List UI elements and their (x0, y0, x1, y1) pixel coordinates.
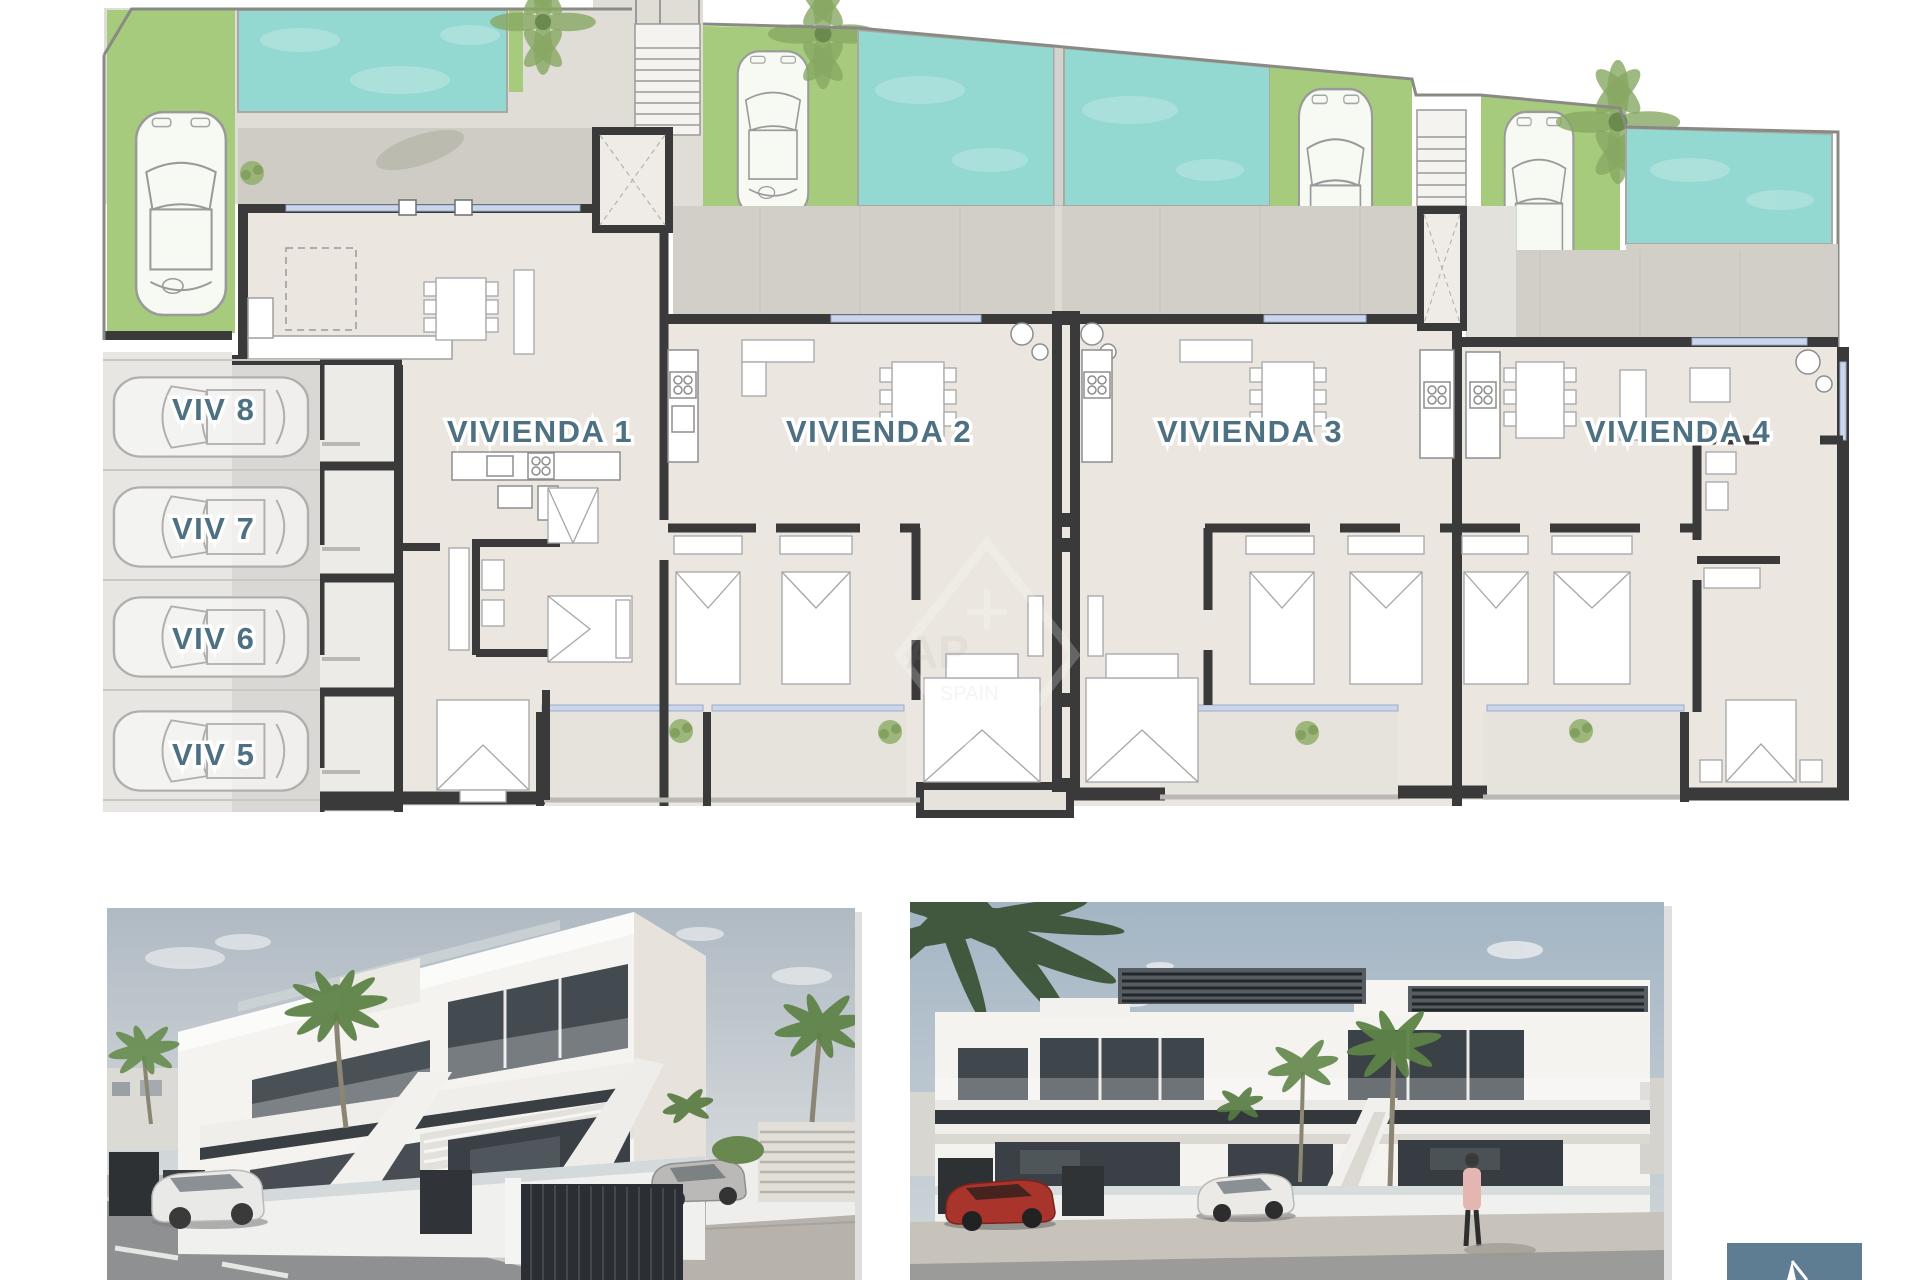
svg-text:VIV 7: VIV 7 (172, 511, 255, 546)
svg-text:VIVIENDA 2: VIVIENDA 2 (786, 414, 972, 449)
svg-text:AP: AP (905, 626, 969, 678)
svg-text:VIVIENDA 1: VIVIENDA 1 (447, 414, 633, 449)
svg-text:VIVIENDA 3: VIVIENDA 3 (1157, 414, 1343, 449)
svg-text:VIV 6: VIV 6 (172, 621, 255, 656)
svg-text:VIV 5: VIV 5 (172, 737, 255, 772)
svg-text:VIV 8: VIV 8 (172, 392, 255, 427)
svg-text:VIVIENDA 4: VIVIENDA 4 (1585, 414, 1771, 449)
svg-text:SPAIN: SPAIN (940, 683, 999, 705)
